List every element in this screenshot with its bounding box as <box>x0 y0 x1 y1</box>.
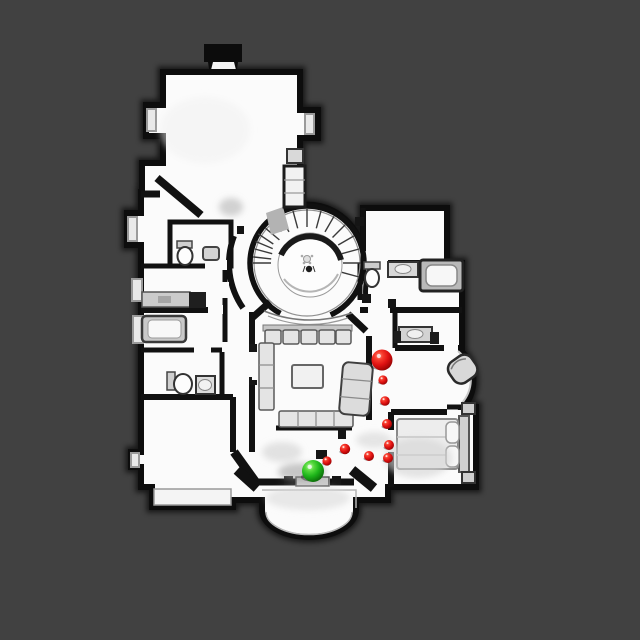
waypoint-dot <box>322 456 331 465</box>
sink <box>388 262 418 277</box>
coffee-table <box>292 365 323 388</box>
start-dot <box>302 460 324 482</box>
toilet <box>364 262 380 287</box>
waypoint-dot-highlight <box>386 455 388 457</box>
nightstand <box>462 472 475 483</box>
window-icon <box>128 217 137 241</box>
window-icon <box>131 453 139 467</box>
sofa-top <box>265 330 351 344</box>
floorplan-svg <box>0 0 640 640</box>
sink <box>203 247 219 260</box>
bathtub <box>420 260 463 291</box>
waypoint-dot-highlight <box>385 421 387 423</box>
counter <box>142 292 206 308</box>
waypoint-dot <box>384 440 394 450</box>
waypoint-dot <box>380 396 390 406</box>
waypoint-dot-highlight <box>367 453 369 455</box>
bathtub <box>142 316 186 342</box>
sink <box>196 376 215 394</box>
pillow <box>446 422 459 443</box>
waypoint-dot <box>372 350 393 371</box>
window-icon <box>305 114 314 134</box>
waypoint-dot <box>364 451 374 461</box>
waypoint-dot <box>383 453 393 463</box>
sofa-left <box>259 343 274 410</box>
start-dot-highlight <box>308 465 312 469</box>
window-icon <box>147 109 156 131</box>
window-icon <box>132 279 142 301</box>
armchair <box>339 362 373 416</box>
toilet <box>177 241 193 265</box>
toilet <box>167 372 192 394</box>
waypoint-dot-highlight <box>381 377 383 379</box>
screenshot-stage <box>0 0 640 640</box>
waypoint-dot <box>340 444 350 454</box>
cabinet <box>284 149 305 207</box>
vanity <box>394 327 439 344</box>
waypoint-dot <box>378 375 387 384</box>
waypoint-dot-highlight <box>377 354 381 358</box>
waypoint-dot <box>382 419 392 429</box>
left-step <box>154 489 231 505</box>
waypoint-dot-highlight <box>325 458 327 460</box>
nightstand <box>462 403 475 414</box>
waypoint-dot-highlight <box>383 398 385 400</box>
waypoint-dot-highlight <box>342 446 344 448</box>
waypoint-dot-highlight <box>387 442 389 444</box>
